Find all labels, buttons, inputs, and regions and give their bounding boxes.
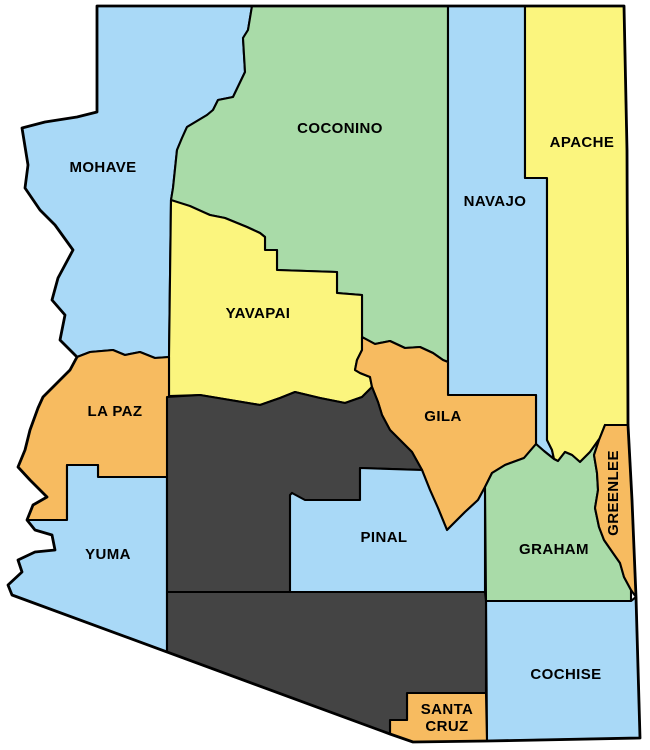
county-map-canvas: MOHAVECOCONINONAVAJOAPACHEYAVAPAILA PAZY… [0, 0, 650, 750]
county-label-yuma: YUMA [85, 546, 131, 563]
county-label-cochise: COCHISE [530, 666, 601, 683]
arizona-county-map: MOHAVECOCONINONAVAJOAPACHEYAVAPAILA PAZY… [0, 0, 650, 750]
county-label-mohave: MOHAVE [69, 159, 136, 176]
county-label-yavapai: YAVAPAI [226, 305, 291, 322]
county-label-pinal: PINAL [361, 529, 408, 546]
county-label-apache: APACHE [550, 134, 615, 151]
county-label-navajo: NAVAJO [464, 193, 527, 210]
county-label-santa_cruz: SANTACRUZ [421, 701, 474, 735]
county-label-gila: GILA [424, 408, 461, 425]
county-label-coconino: COCONINO [297, 120, 383, 137]
county-label-greenlee: GREENLEE [605, 450, 622, 536]
county-label-la_paz: LA PAZ [88, 403, 143, 420]
county-label-graham: GRAHAM [519, 541, 589, 558]
